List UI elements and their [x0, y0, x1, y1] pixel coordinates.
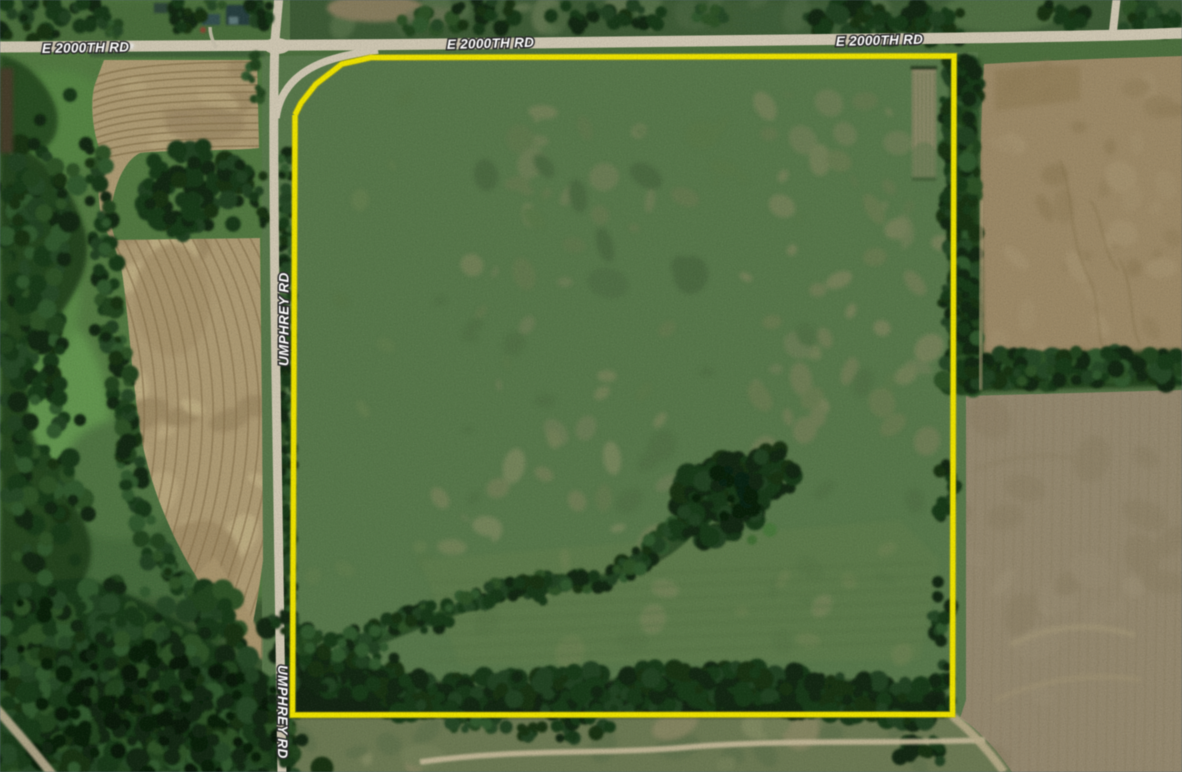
svg-text:UMPHREY RD: UMPHREY RD — [277, 272, 292, 366]
svg-text:E 2000TH RD: E 2000TH RD — [447, 35, 535, 52]
svg-text:E 2000TH RD: E 2000TH RD — [42, 39, 130, 56]
svg-text:UMPHREY RD: UMPHREY RD — [275, 665, 290, 759]
svg-text:E 2000TH RD: E 2000TH RD — [836, 32, 924, 49]
